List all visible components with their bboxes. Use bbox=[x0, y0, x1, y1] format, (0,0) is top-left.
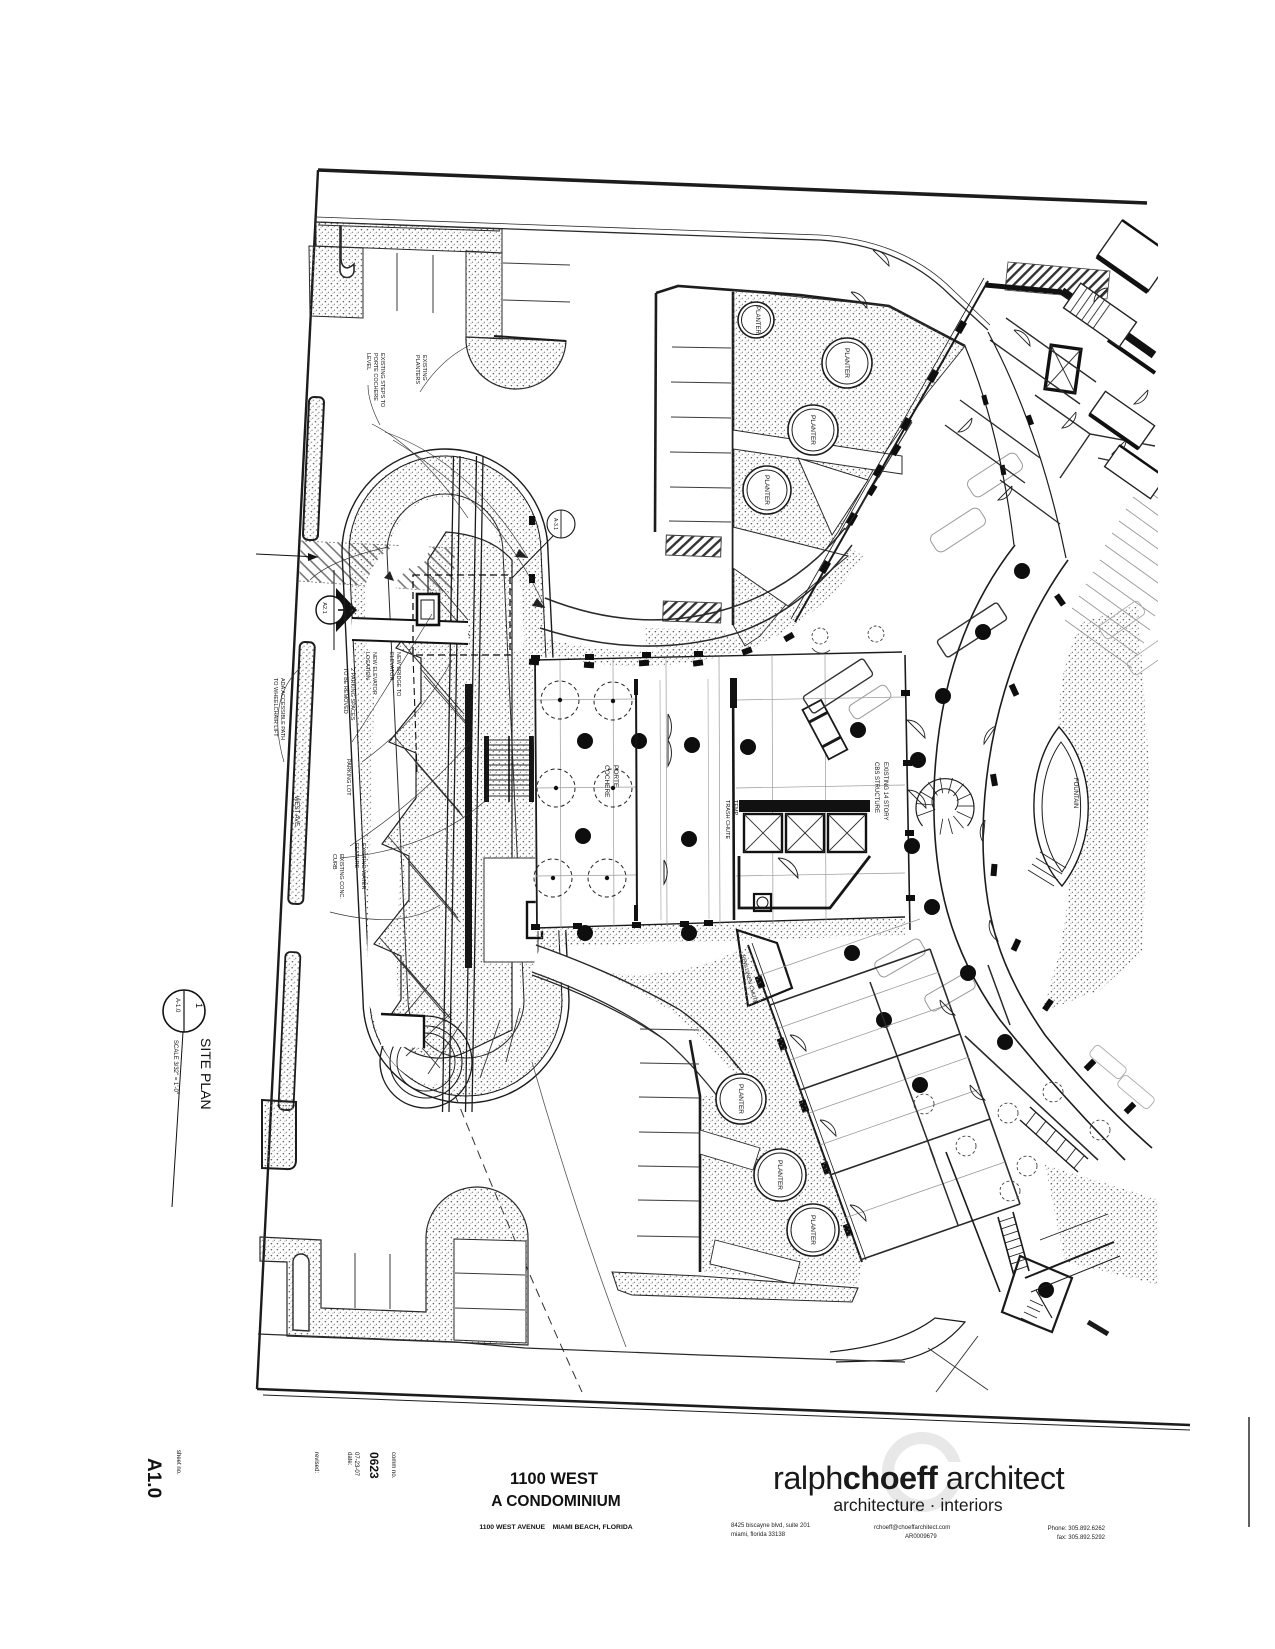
svg-text:CBS STRUCTURE: CBS STRUCTURE bbox=[873, 762, 879, 813]
svg-text:SCALE 3/32" = 1'-0": SCALE 3/32" = 1'-0" bbox=[172, 1040, 178, 1094]
svg-text:date:: date: bbox=[346, 1452, 352, 1466]
svg-text:A1.0: A1.0 bbox=[143, 1458, 164, 1498]
svg-text:2 PARKING SPACESTO BE REMOVED: 2 PARKING SPACESTO BE REMOVED bbox=[342, 668, 355, 721]
svg-text:PLANTER: PLANTER bbox=[737, 1084, 744, 1114]
svg-text:WEST AVE.: WEST AVE. bbox=[293, 796, 299, 828]
svg-text:PLANTER: PLANTER bbox=[776, 1160, 783, 1190]
svg-text:1: 1 bbox=[194, 1003, 204, 1008]
svg-text:comm no.: comm no. bbox=[390, 1452, 396, 1479]
svg-text:FOUNTAIN: FOUNTAIN bbox=[1072, 778, 1078, 808]
svg-text:TRASH CHUTE: TRASH CHUTE bbox=[724, 800, 730, 839]
svg-text:fax: 305.892.5292: fax: 305.892.5292 bbox=[1057, 1535, 1106, 1541]
svg-text:A-3.1: A-3.1 bbox=[552, 518, 558, 530]
svg-text:PLANTER: PLANTER bbox=[843, 348, 850, 378]
svg-text:miami, florida 33138: miami, florida 33138 bbox=[731, 1532, 786, 1538]
svg-text:architecture · interiors: architecture · interiors bbox=[833, 1495, 1002, 1515]
svg-text:sheet no.: sheet no. bbox=[175, 1450, 181, 1475]
svg-text:Phone: 305.892.6262: Phone: 305.892.6262 bbox=[1048, 1526, 1106, 1532]
svg-text:ralphchoeff architect: ralphchoeff architect bbox=[773, 1460, 1065, 1496]
svg-text:COCHERE: COCHERE bbox=[603, 765, 610, 798]
svg-text:0623: 0623 bbox=[367, 1452, 381, 1479]
svg-text:07-23-07: 07-23-07 bbox=[353, 1452, 359, 1477]
svg-text:A CONDOMINIUM: A CONDOMINIUM bbox=[491, 1493, 620, 1510]
svg-text:SITE PLAN: SITE PLAN bbox=[198, 1038, 214, 1110]
svg-text:AR0009679: AR0009679 bbox=[905, 1534, 937, 1540]
svg-text:PLANTER: PLANTER bbox=[763, 475, 770, 505]
svg-text:PORTE: PORTE bbox=[612, 765, 619, 788]
svg-text:revised:: revised: bbox=[313, 1452, 319, 1473]
svg-text:1100 WEST AVENUE MIAMI BEAC: 1100 WEST AVENUE MIAMI BEACH, FLORIDA bbox=[479, 1524, 632, 1531]
svg-text:1100 WEST: 1100 WEST bbox=[510, 1470, 598, 1488]
svg-text:TEMP.: TEMP. bbox=[732, 800, 738, 817]
svg-text:PLANTER: PLANTER bbox=[809, 1215, 816, 1245]
svg-text:rchoeff@choeffarchitect.com: rchoeff@choeffarchitect.com bbox=[874, 1525, 950, 1531]
svg-text:8425 biscayne blvd, suite 201: 8425 biscayne blvd, suite 201 bbox=[731, 1523, 811, 1529]
svg-text:EXISTING 14 STORY: EXISTING 14 STORY bbox=[882, 762, 888, 820]
svg-text:PLANTER: PLANTER bbox=[809, 415, 816, 445]
svg-text:A2.1: A2.1 bbox=[321, 602, 327, 613]
svg-text:PLANTER: PLANTER bbox=[754, 306, 760, 334]
svg-text:ADA ACCESSIBLE PATHTO WHEELCHA: ADA ACCESSIBLE PATHTO WHEELCHAIR LIFT bbox=[272, 678, 285, 740]
svg-text:A-1.0: A-1.0 bbox=[174, 998, 180, 1013]
svg-text:PARKING LOT: PARKING LOT bbox=[345, 759, 351, 796]
svg-text:EXISTINGPLANTERS: EXISTINGPLANTERS bbox=[414, 355, 427, 384]
